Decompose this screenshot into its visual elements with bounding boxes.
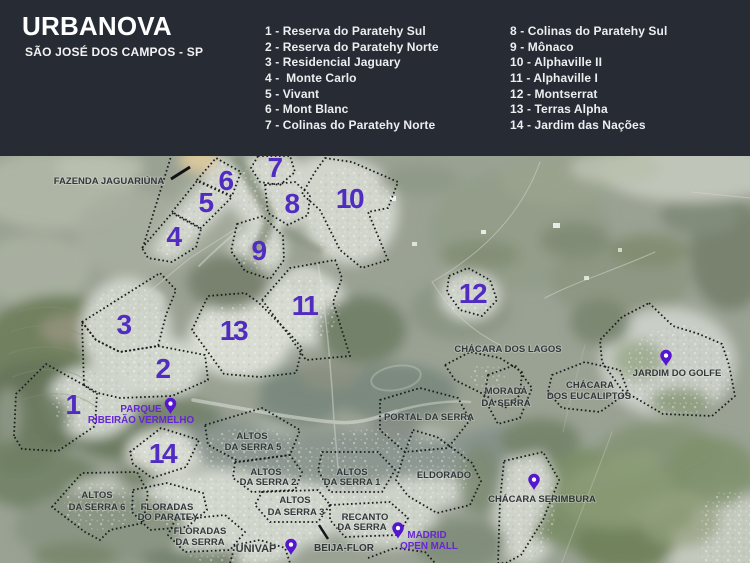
svg-text:PORTAL DA SERRA: PORTAL DA SERRA [384,412,474,423]
svg-text:CHÁCARA SERIMBURA: CHÁCARA SERIMBURA [488,494,596,505]
svg-text:FLORADAS: FLORADAS [174,526,227,537]
svg-text:14: 14 [149,438,178,469]
svg-text:MADRID: MADRID [407,530,446,541]
svg-text:CHÁCARA DOS LAGOS: CHÁCARA DOS LAGOS [454,344,561,355]
svg-text:JARDIM DO GOLFE: JARDIM DO GOLFE [633,368,722,379]
svg-text:12: 12 [459,278,487,309]
svg-text:DA SERRA 6: DA SERRA 6 [69,502,126,513]
svg-text:DA SERRA 5: DA SERRA 5 [225,442,283,453]
svg-text:OPEN MALL: OPEN MALL [400,541,458,552]
svg-text:3: 3 [116,309,131,340]
svg-text:2: 2 [155,353,170,384]
svg-text:DA SERRA 2: DA SERRA 2 [240,477,297,488]
svg-text:DOS EUCALIPTOS: DOS EUCALIPTOS [547,391,631,402]
svg-text:9: 9 [251,235,266,266]
svg-text:UNIVAP: UNIVAP [236,543,277,555]
svg-text:DA SERRA 3: DA SERRA 3 [268,507,325,518]
svg-text:7: 7 [267,156,282,183]
svg-text:DA SERRA: DA SERRA [175,537,224,548]
svg-text:ALTOS: ALTOS [279,495,310,506]
svg-text:FAZENDA JAGUARIÚNA: FAZENDA JAGUARIÚNA [54,175,165,187]
svg-text:ELDORADO: ELDORADO [417,470,471,481]
svg-text:1: 1 [65,389,80,420]
svg-text:ALTOS: ALTOS [81,490,112,501]
svg-text:DA SERRA: DA SERRA [337,522,386,533]
svg-text:13: 13 [220,315,248,346]
svg-text:5: 5 [198,187,213,218]
svg-text:DA SERRA 1: DA SERRA 1 [324,477,382,488]
svg-text:ALTOS: ALTOS [236,431,267,442]
svg-text:10: 10 [336,183,364,214]
svg-text:DO PARATEY: DO PARATEY [138,512,200,523]
svg-text:6: 6 [218,165,233,196]
svg-text:RIBEIRÃO VERMELHO: RIBEIRÃO VERMELHO [88,415,195,426]
svg-text:MORADÁ: MORADÁ [485,386,528,397]
svg-text:PARQUE: PARQUE [120,404,162,415]
svg-text:CHÁCARA: CHÁCARA [566,380,614,391]
svg-text:11: 11 [292,290,319,321]
svg-text:BEIJA-FLOR: BEIJA-FLOR [314,543,375,554]
svg-text:8: 8 [284,188,299,219]
svg-text:DA SERRA: DA SERRA [481,398,530,409]
